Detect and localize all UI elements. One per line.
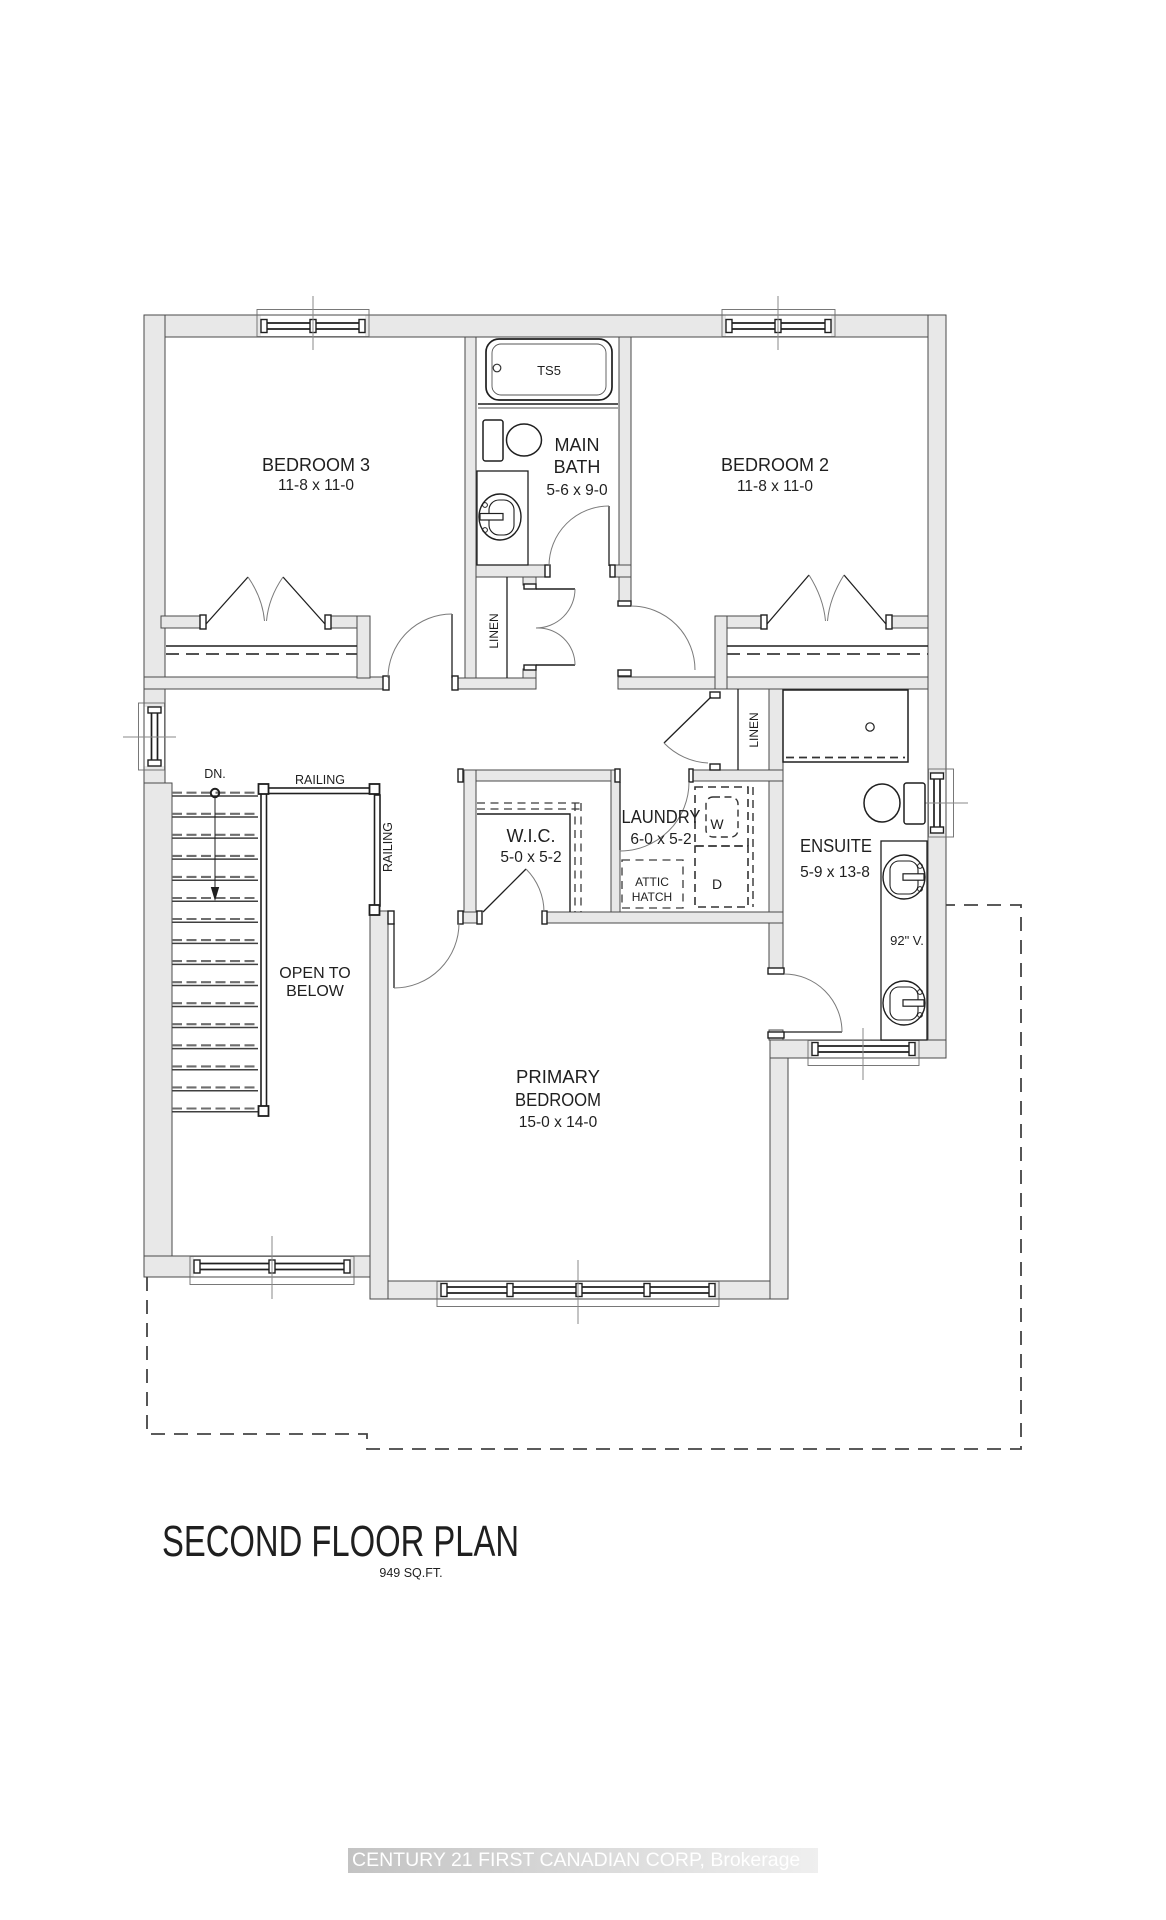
svg-text:LINEN: LINEN [487, 613, 501, 648]
svg-text:BEDROOM 3: BEDROOM 3 [262, 455, 370, 475]
svg-text:15-0 x 14-0: 15-0 x 14-0 [519, 1114, 598, 1131]
svg-text:BEDROOM: BEDROOM [515, 1089, 601, 1110]
svg-text:SECOND FLOOR PLAN: SECOND FLOOR PLAN [162, 1517, 519, 1566]
svg-text:92" V.: 92" V. [890, 933, 924, 948]
svg-text:ATTIC: ATTIC [635, 875, 669, 889]
svg-text:5-6 x 9-0: 5-6 x 9-0 [546, 482, 608, 499]
svg-text:PRIMARY: PRIMARY [516, 1066, 600, 1087]
svg-text:HATCH: HATCH [632, 890, 672, 904]
svg-text:11-8 x 11-0: 11-8 x 11-0 [737, 478, 813, 495]
svg-text:OPEN TO: OPEN TO [279, 965, 350, 982]
svg-text:6-0 x 5-2: 6-0 x 5-2 [630, 831, 691, 848]
svg-text:W.I.C.: W.I.C. [507, 826, 556, 846]
svg-text:W: W [710, 816, 724, 832]
svg-text:BELOW: BELOW [286, 983, 345, 1000]
svg-text:BEDROOM 2: BEDROOM 2 [721, 455, 829, 475]
svg-text:LINEN: LINEN [747, 712, 761, 747]
svg-text:ENSUITE: ENSUITE [800, 836, 872, 856]
svg-text:BATH: BATH [554, 457, 601, 477]
svg-text:TS5: TS5 [537, 363, 561, 378]
svg-text:5-9 x 13-8: 5-9 x 13-8 [800, 864, 870, 881]
svg-text:RAILING: RAILING [295, 773, 345, 787]
svg-text:MAIN: MAIN [555, 435, 600, 455]
svg-text:5-0 x 5-2: 5-0 x 5-2 [500, 849, 561, 866]
svg-text:D: D [712, 876, 722, 892]
svg-text:949 SQ.FT.: 949 SQ.FT. [379, 1566, 442, 1580]
svg-text:11-8 x 11-0: 11-8 x 11-0 [278, 477, 354, 494]
svg-text:LAUNDRY: LAUNDRY [622, 807, 701, 827]
svg-text:RAILING: RAILING [381, 822, 395, 872]
svg-text:DN.: DN. [204, 767, 226, 781]
